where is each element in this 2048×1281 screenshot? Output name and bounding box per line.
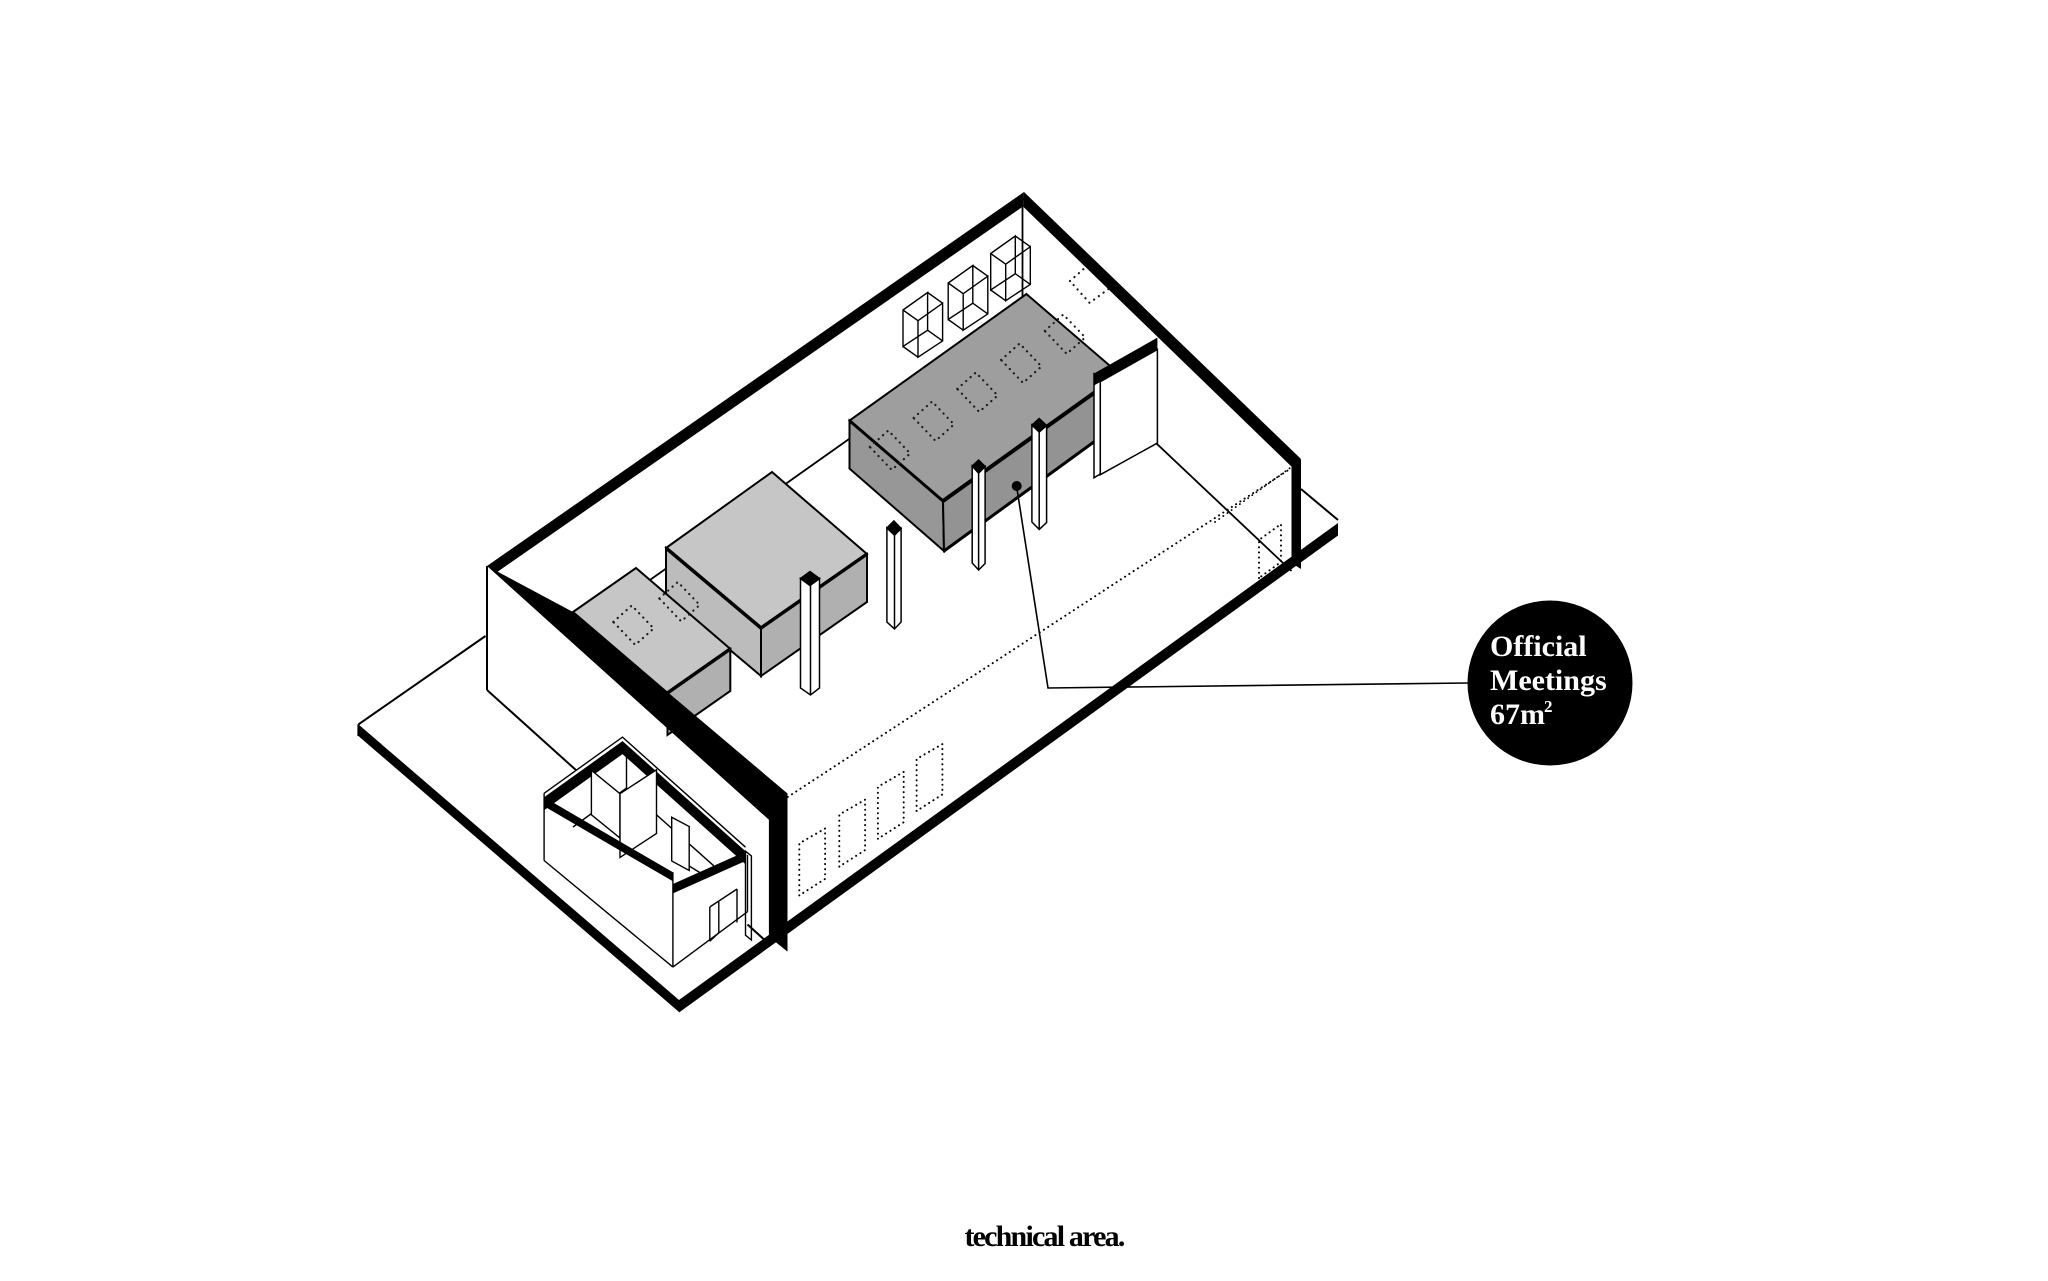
svg-text:technical area.: technical area. [964, 1220, 1124, 1253]
svg-text:2: 2 [1544, 697, 1553, 716]
svg-text:Meetings: Meetings [1490, 664, 1607, 697]
svg-text:Official: Official [1490, 630, 1587, 663]
svg-text:67m: 67m [1490, 698, 1545, 731]
